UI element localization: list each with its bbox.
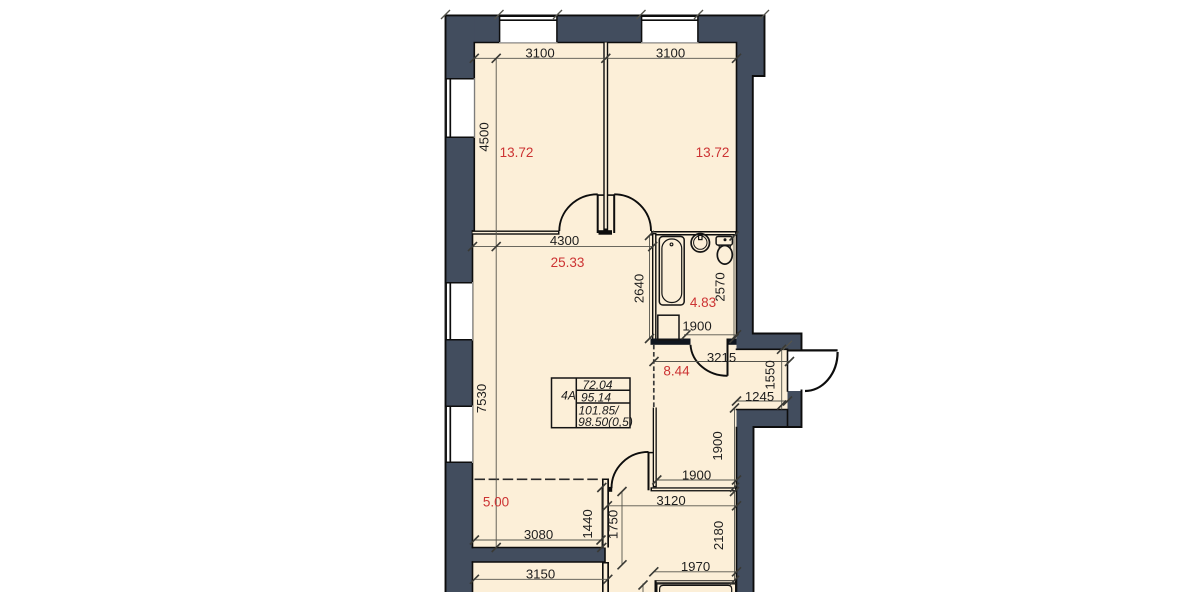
svg-text:13.72: 13.72 <box>696 145 730 160</box>
svg-text:1440: 1440 <box>580 509 595 538</box>
svg-text:3215: 3215 <box>707 350 736 365</box>
svg-text:8.44: 8.44 <box>663 364 690 379</box>
svg-text:4300: 4300 <box>550 233 579 248</box>
svg-text:4.83: 4.83 <box>690 295 716 310</box>
svg-text:4500: 4500 <box>477 122 492 151</box>
svg-text:1900: 1900 <box>682 467 711 482</box>
svg-text:98.50(0,5): 98.50(0,5) <box>578 415 633 429</box>
svg-text:2640: 2640 <box>632 274 647 303</box>
svg-text:7530: 7530 <box>474 384 489 413</box>
svg-text:4A: 4A <box>561 389 576 403</box>
svg-text:25.33: 25.33 <box>551 255 585 270</box>
svg-text:3100: 3100 <box>525 46 554 61</box>
svg-text:1750: 1750 <box>606 510 621 539</box>
svg-text:13.72: 13.72 <box>500 145 534 160</box>
svg-text:3120: 3120 <box>656 493 685 508</box>
svg-text:3150: 3150 <box>526 566 555 581</box>
svg-text:3100: 3100 <box>656 46 685 61</box>
svg-text:3080: 3080 <box>524 527 553 542</box>
svg-text:1550: 1550 <box>763 360 778 389</box>
svg-text:1900: 1900 <box>710 431 725 460</box>
svg-text:2180: 2180 <box>711 521 726 550</box>
svg-text:5.00: 5.00 <box>483 495 509 510</box>
svg-text:1900: 1900 <box>682 319 711 334</box>
svg-text:1245: 1245 <box>745 389 774 404</box>
svg-text:1970: 1970 <box>681 559 710 574</box>
